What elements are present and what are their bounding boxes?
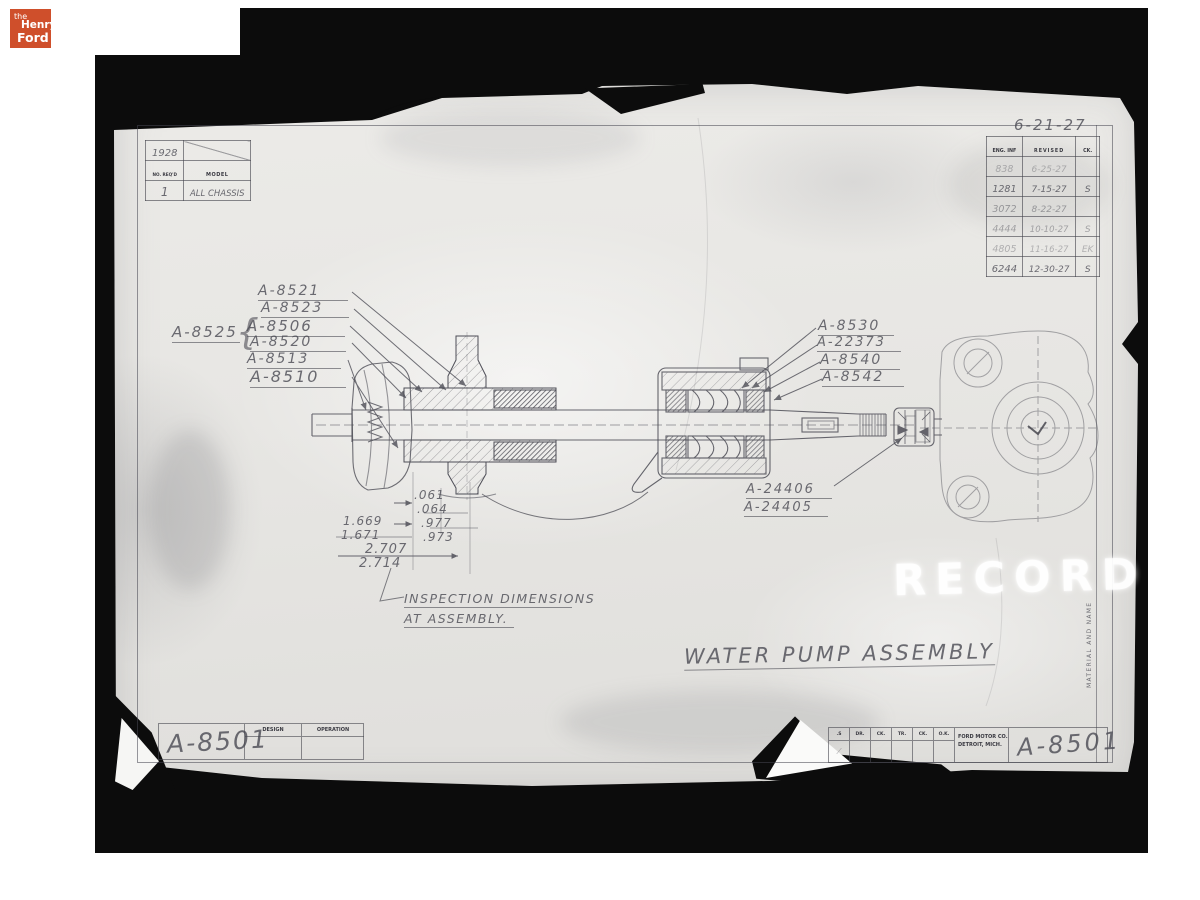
- rev-col-revised: REVISED: [1034, 149, 1064, 154]
- model-year: 1928: [152, 148, 177, 159]
- approval-cell-label: DR.: [856, 732, 865, 737]
- rev-date: 12-30-27: [1029, 265, 1070, 275]
- operation-header: OPERATION: [317, 727, 349, 733]
- approval-cell-label: .S: [837, 732, 842, 737]
- model-table: 1928 NO. REQ'D MODEL 1 ALL CHASSIS: [145, 140, 251, 201]
- inspection-note-line1: INSPECTION DIMENSIONS: [404, 591, 572, 608]
- dim-1669: 1.669: [343, 514, 382, 528]
- part-label-a8540: A-8540: [820, 352, 900, 370]
- photo-mat-top: [240, 8, 1148, 56]
- rev-eng: 4444: [992, 224, 1016, 235]
- part-label-a8510: A-8510: [250, 367, 346, 388]
- part-label-a22373: A-22373: [817, 335, 901, 352]
- revision-row: 4444 10-10-27 S: [987, 217, 1100, 237]
- company-cell: FORD MOTOR CO. DETROIT, MICH.: [955, 728, 1009, 762]
- rev-ck: S: [1085, 265, 1091, 275]
- rev-ck: EK: [1082, 245, 1094, 255]
- drawing-border: [137, 125, 1113, 763]
- rev-date: 11-16-27: [1030, 245, 1069, 255]
- inspection-note-line2: AT ASSEMBLY.: [404, 611, 514, 628]
- part-label-a8530: A-8530: [818, 318, 894, 336]
- rev-eng: 4805: [992, 244, 1016, 255]
- part-label-a24406: A-24406: [746, 482, 832, 499]
- part-label-a8525: A-8525: [172, 323, 240, 343]
- rev-date: 6-25-27: [1032, 165, 1067, 175]
- rev-date: 10-10-27: [1030, 225, 1069, 235]
- part-label-a8520: A-8520: [250, 334, 346, 352]
- rev-ck: S: [1085, 185, 1091, 195]
- rev-date: 7-15-27: [1032, 185, 1067, 195]
- dim-977: .977: [421, 516, 452, 530]
- rev-ck: S: [1085, 225, 1091, 235]
- dim-2714: 2.714: [359, 556, 401, 571]
- dim-2707: 2.707: [365, 542, 407, 557]
- model-value: ALL CHASSIS: [190, 189, 245, 199]
- company-name: FORD MOTOR CO.: [958, 734, 1006, 740]
- rev-eng: 3072: [992, 204, 1016, 215]
- date-note: 6-21-27: [1014, 116, 1087, 134]
- part-label-a24405: A-24405: [744, 500, 828, 517]
- approval-cell-label: TR.: [898, 732, 906, 737]
- dim-1671: 1.671: [341, 528, 380, 542]
- model-header: MODEL: [206, 172, 228, 178]
- dim-973: .973: [423, 530, 454, 544]
- rev-eng: 1281: [992, 184, 1016, 195]
- no-reqd-header: NO. REQ'D: [153, 172, 177, 177]
- dim-061: .061: [414, 488, 445, 502]
- rev-date: 8-22-27: [1032, 205, 1067, 215]
- revision-row: 838 6-25-27: [987, 157, 1100, 177]
- revision-row: 6244 12-30-27 S: [987, 257, 1100, 277]
- rev-eng: 838: [995, 164, 1013, 175]
- revision-row: 4805 11-16-27 EK: [987, 237, 1100, 257]
- company-city: DETROIT, MICH.: [958, 742, 1006, 748]
- approval-cell-label: CK.: [877, 732, 886, 737]
- logo-ford: Ford: [17, 30, 49, 45]
- group-brace: {: [236, 312, 259, 353]
- rev-col-eng-inf: ENG. INF: [993, 149, 1017, 154]
- rev-col-ck: CK.: [1083, 149, 1092, 154]
- no-reqd-value: 1: [161, 185, 169, 199]
- drawing-number-right: A-8501: [1016, 726, 1122, 761]
- design-operation-grid: DESIGN OPERATION: [244, 724, 364, 759]
- rev-eng: 6244: [992, 264, 1017, 275]
- revision-row: 1281 7-15-27 S: [987, 177, 1100, 197]
- title-block-right: .S DR. CK. TR. CK. O.K. ⁄ FORD MOTOR CO.…: [828, 727, 1108, 763]
- drawing-number-cell: A-8501: [1009, 728, 1107, 762]
- material-and-name-label: MATERIAL AND NAME: [1086, 588, 1093, 688]
- part-label-a8521: A-8521: [258, 283, 348, 301]
- title-block-left: A-8501 DESIGN OPERATION: [158, 723, 364, 760]
- approval-cells: .S DR. CK. TR. CK. O.K. ⁄: [829, 728, 955, 762]
- record-watermark: RECORD: [892, 550, 1147, 607]
- scanned-blueprint-page: the Henry Ford: [0, 0, 1200, 900]
- approval-cell-label: O.K.: [939, 732, 950, 737]
- drawing-title: WATER PUMP ASSEMBLY: [684, 639, 995, 670]
- part-label-a8542: A-8542: [822, 369, 904, 387]
- henry-ford-logo: the Henry Ford: [10, 9, 51, 48]
- revision-row: 3072 8-22-27: [987, 197, 1100, 217]
- dim-064: .064: [417, 502, 448, 516]
- part-label-a8523: A-8523: [261, 300, 349, 318]
- approval-cell-label: CK.: [919, 732, 928, 737]
- revision-table: ENG. INF REVISED CK. 838 6-25-27 1281 7-…: [986, 136, 1100, 277]
- design-header: DESIGN: [262, 727, 283, 733]
